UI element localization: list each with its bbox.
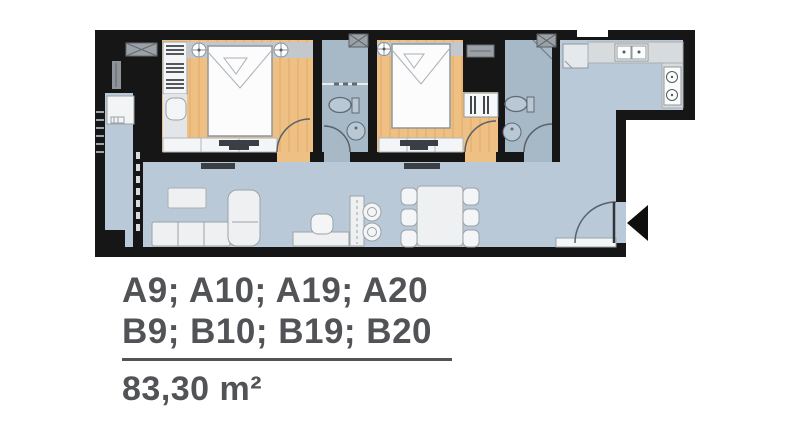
tv-console-icon bbox=[201, 163, 235, 169]
corner-column bbox=[101, 230, 125, 250]
ceiling-light-dot bbox=[280, 49, 283, 52]
kitchen-window bbox=[577, 30, 608, 37]
bathroom-2-door-opening bbox=[524, 152, 552, 162]
sink-icon bbox=[347, 122, 365, 140]
dining-chair-icon bbox=[401, 230, 417, 247]
sink-drain-dot bbox=[355, 127, 358, 130]
sofa-chaise bbox=[228, 190, 260, 246]
dining-chair-icon bbox=[463, 188, 479, 205]
tv-console-icon bbox=[219, 140, 259, 146]
toilet-tank bbox=[352, 98, 359, 113]
tv-console-base bbox=[229, 146, 249, 150]
ceiling-light-dot bbox=[198, 49, 201, 52]
faucet-dot bbox=[623, 51, 626, 54]
unit-list-line-2: B9; B10; B19; B20 bbox=[122, 311, 452, 352]
stove-icon bbox=[664, 67, 681, 105]
unit-list-line-1: A9; A10; A19; A20 bbox=[122, 270, 452, 311]
tv-console-icon bbox=[400, 140, 438, 146]
sink-icon bbox=[503, 123, 521, 141]
fridge-icon bbox=[563, 44, 588, 68]
ceiling-light-dot bbox=[383, 48, 386, 51]
tv-console-icon bbox=[404, 163, 440, 169]
toilet-tank bbox=[527, 97, 534, 112]
toilet-icon bbox=[505, 97, 527, 112]
bathroom-1-door-opening bbox=[324, 152, 350, 162]
burner-dot bbox=[671, 94, 673, 96]
dining-chair-icon bbox=[463, 230, 479, 247]
dining-table-icon bbox=[417, 186, 463, 246]
desk-chair-icon bbox=[311, 214, 333, 234]
faucet-dot bbox=[638, 51, 641, 54]
bedroom-2-door-opening bbox=[465, 152, 496, 162]
sink-drain-dot bbox=[511, 128, 514, 131]
floor-plan-page: A9; A10; A19; A20 B9; B10; B19; B20 83,3… bbox=[0, 0, 800, 425]
bar-stool-icon bbox=[363, 223, 381, 241]
area-label: 83,30 m² bbox=[122, 370, 452, 409]
bedroom-1-door-opening bbox=[277, 152, 310, 162]
unit-info-block: A9; A10; A19; A20 B9; B10; B19; B20 83,3… bbox=[122, 270, 452, 409]
closet-icon bbox=[464, 93, 498, 117]
stool-icon bbox=[166, 98, 186, 120]
tv-console-base bbox=[410, 146, 428, 150]
entrance-door-opening bbox=[616, 202, 626, 243]
coffee-table-icon bbox=[168, 188, 206, 208]
dining-chair-icon bbox=[401, 209, 417, 226]
divider-line bbox=[122, 358, 452, 361]
dining-chair-icon bbox=[401, 188, 417, 205]
burner-dot bbox=[671, 76, 673, 78]
entrance-arrow-icon bbox=[627, 205, 648, 241]
shoe-cabinet-icon bbox=[556, 238, 616, 247]
bar-stool-icon bbox=[363, 203, 381, 221]
dining-chair-icon bbox=[463, 209, 479, 226]
toilet-icon bbox=[329, 98, 351, 113]
sofa-seat bbox=[152, 222, 230, 246]
